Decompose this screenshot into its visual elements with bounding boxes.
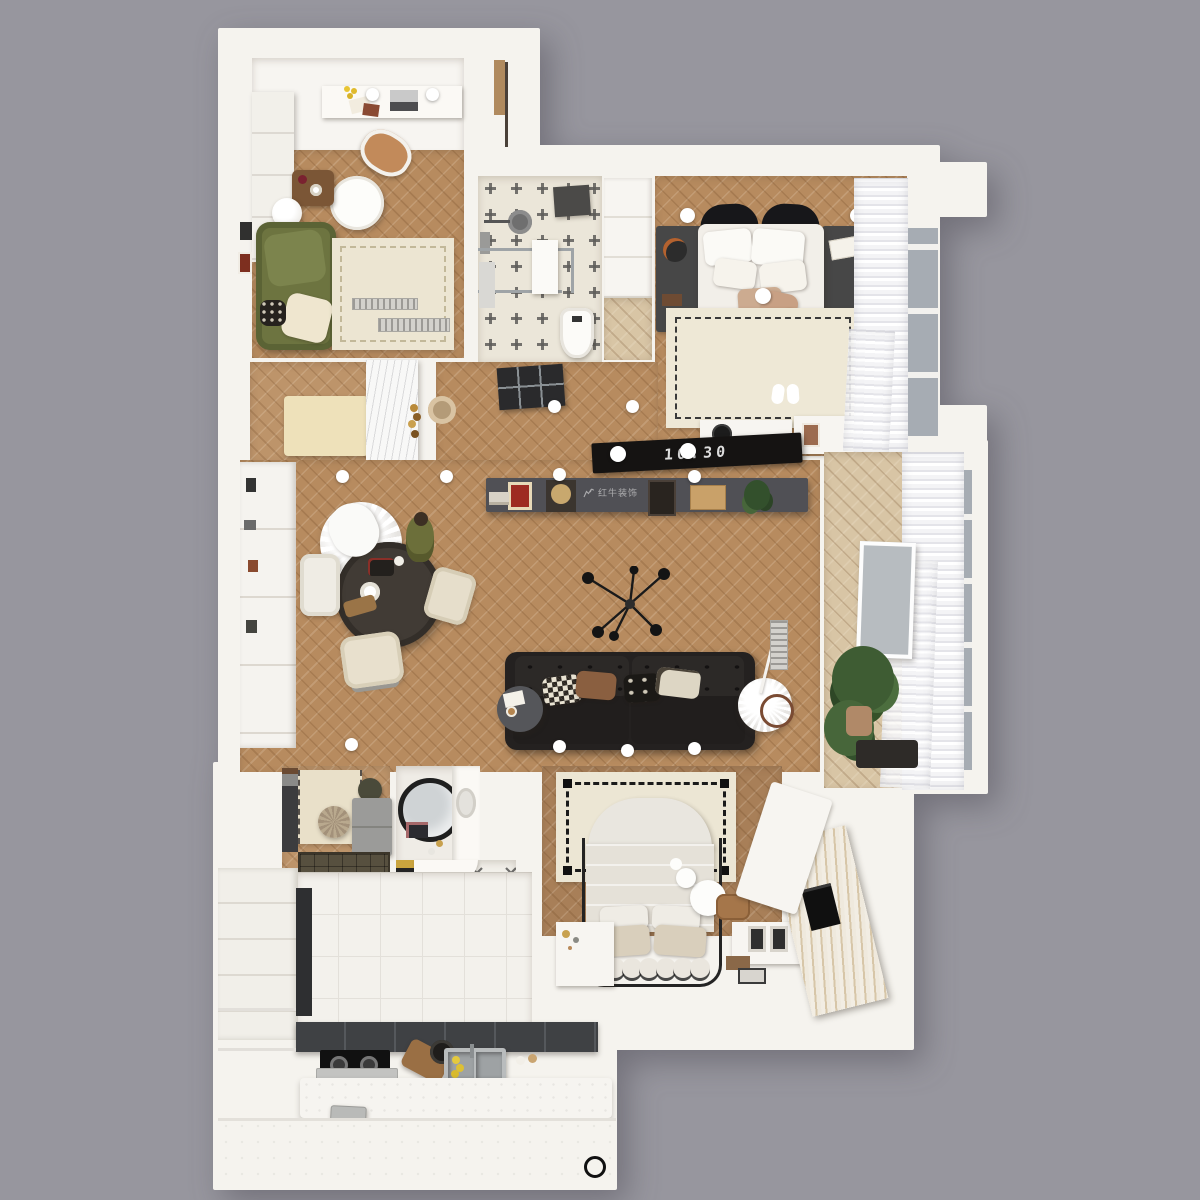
rug-corner-square <box>563 866 572 875</box>
master-rug <box>666 308 860 428</box>
laptop-keyboard <box>390 102 418 111</box>
shelf-decor <box>246 478 256 492</box>
sofa-pillow-brown <box>575 670 617 700</box>
sputnik-chandelier <box>578 566 682 642</box>
hall-closet-floor <box>604 298 652 360</box>
ceiling-light <box>626 400 639 413</box>
ceiling-light <box>688 470 701 483</box>
study-rug <box>332 238 454 350</box>
console-art-dark <box>648 480 676 516</box>
coffee-table-cup <box>298 175 307 184</box>
wall-frame-dark <box>240 222 252 240</box>
shelf-wall-unit <box>240 462 296 748</box>
sofa-pillow-cream <box>654 666 701 699</box>
desk-notebook <box>362 103 380 117</box>
bedside-tablet <box>738 968 766 984</box>
rug-corner-square <box>563 779 572 788</box>
tablet-frame <box>406 822 428 838</box>
round-side-table <box>330 176 384 230</box>
photo-frame <box>770 926 788 952</box>
marble-screen <box>366 360 418 462</box>
master-curtain-layer <box>843 329 895 453</box>
shelf-decor <box>248 560 258 572</box>
sink-faucet <box>470 1044 474 1058</box>
laptop <box>390 90 418 102</box>
desk-flowers <box>344 86 350 92</box>
kitchen-sill <box>218 1118 616 1188</box>
deco-ball <box>755 288 771 304</box>
nightstand-decor <box>562 930 570 938</box>
tall-dark-cabinet <box>296 888 312 1016</box>
ceiling-light <box>426 88 439 101</box>
coffee-table-dish <box>310 184 322 196</box>
rattan-pouf <box>318 806 350 838</box>
hall-closet <box>604 178 652 298</box>
slipper <box>786 384 799 405</box>
perfume-bottle <box>436 840 443 847</box>
sofa-seat-cushion <box>631 696 745 744</box>
rain-shower-head <box>508 210 532 234</box>
ceiling-light <box>440 470 453 483</box>
bathroom1-cabinet <box>553 185 591 217</box>
apartment-footprint: 10:30 红牛装饰 <box>0 0 1200 1200</box>
floor-vent <box>770 620 788 670</box>
study-door-frame <box>505 62 508 147</box>
tv-clock-time: 10:30 <box>664 442 730 463</box>
kraft-box <box>690 485 726 510</box>
console-photo <box>802 423 820 447</box>
pendant-ball-small <box>670 858 682 870</box>
ceiling-light <box>336 470 349 483</box>
ceiling-light <box>345 738 358 751</box>
wall-bump-right-upper <box>935 162 987 217</box>
nightstand-box <box>662 294 682 306</box>
kitchen-floor <box>296 872 532 1040</box>
floorplan-render: 10:30 红牛装饰 <box>0 0 1200 1200</box>
brand-watermark-text: 红牛装饰 <box>598 486 638 499</box>
red-book <box>508 482 532 510</box>
ceiling-light <box>680 443 696 459</box>
bed-pillow <box>712 257 757 291</box>
floor-grille-1 <box>352 298 418 310</box>
toilet-buttons <box>572 316 582 322</box>
glass-partition-3 <box>571 248 574 293</box>
shower-arm <box>484 220 510 223</box>
dining-chair-left <box>300 554 340 616</box>
brand-watermark: 红牛装饰 <box>582 486 638 499</box>
bathroom1-sink <box>479 262 495 308</box>
ceiling-light <box>610 446 626 462</box>
porch-step-line <box>218 1048 296 1051</box>
master-rug-dot-border <box>675 317 851 419</box>
vanity-sink <box>456 788 476 818</box>
ceiling-light <box>688 742 701 755</box>
photo-frame <box>748 926 766 952</box>
kitchen-left-cabinets <box>218 868 298 1040</box>
glass-partition-1 <box>478 248 574 251</box>
drying-mirror-panel <box>856 541 916 659</box>
ceiling-light <box>366 88 379 101</box>
ceiling-light <box>553 468 566 481</box>
floor-grille-2 <box>378 318 450 332</box>
counter-jar <box>516 1056 525 1065</box>
book-stack <box>489 492 509 502</box>
antelope-logo-icon <box>582 487 595 498</box>
rattan-mirror-tray <box>428 396 456 424</box>
cream-bench <box>284 396 368 456</box>
fruit-bowl <box>663 238 687 262</box>
green-sofa-cushion <box>263 228 328 288</box>
sink-basin <box>476 1052 502 1078</box>
pendant-lamp-left <box>680 208 695 223</box>
lemons <box>452 1056 460 1064</box>
rug-corner-square <box>720 779 729 788</box>
bed2-pillow-beige <box>653 924 707 958</box>
wall-frame-red <box>238 252 252 274</box>
dining-chair-bottom <box>339 630 406 690</box>
patterned-pillow <box>260 300 286 326</box>
lamp-hoop-handle <box>760 694 794 728</box>
ceiling-light <box>553 740 566 753</box>
shelf-decor <box>246 620 257 633</box>
coffee-cup <box>506 706 517 717</box>
shelf-decor <box>244 520 256 530</box>
serving-tray <box>368 558 394 576</box>
porch-step-line <box>218 1008 296 1011</box>
dark-planter <box>856 740 918 768</box>
dried-flowers <box>410 404 418 412</box>
shoe-cabinet <box>352 798 392 856</box>
ceiling-light <box>548 400 561 413</box>
pendant-ball-mid <box>676 868 696 888</box>
ceiling-light <box>621 744 634 757</box>
door-knob <box>584 1156 606 1178</box>
entry-shelf-dark <box>282 768 298 852</box>
console-art-circle <box>551 484 571 504</box>
tea-cup <box>394 556 404 566</box>
scallop <box>690 958 710 978</box>
shower-door-white <box>532 240 558 294</box>
plant-pot <box>846 706 872 736</box>
vase-mouth <box>414 512 428 526</box>
study-door-leaf <box>494 60 505 115</box>
console-plant <box>744 480 770 510</box>
